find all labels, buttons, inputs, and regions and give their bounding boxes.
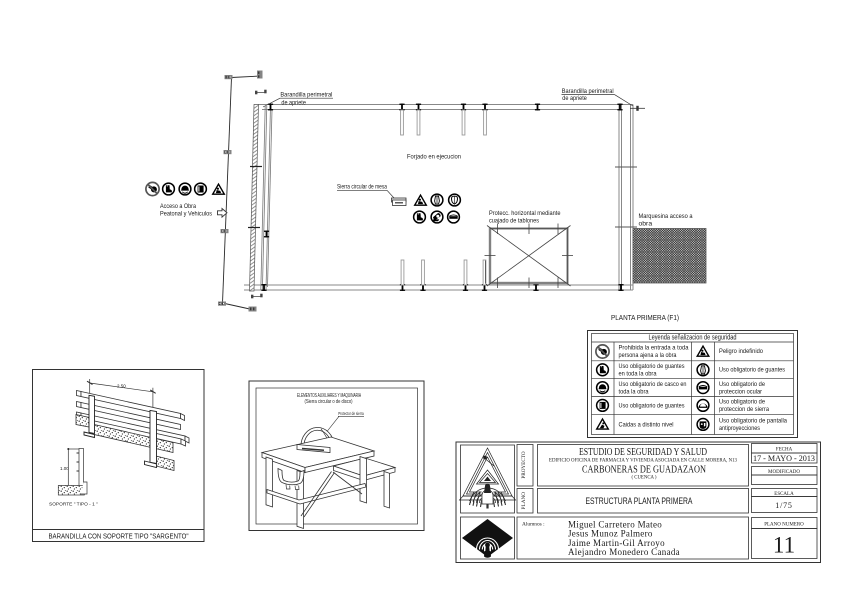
svg-text:1.00: 1.00	[60, 466, 69, 471]
svg-text:Sierra circular de mesa: Sierra circular de mesa	[337, 184, 387, 191]
svg-text:(Sierra circular o de disco): (Sierra circular o de disco)	[305, 399, 353, 405]
svg-text:PROYECTO: PROYECTO	[521, 451, 527, 479]
svg-text:persona ajena a la obra: persona ajena a la obra	[619, 352, 677, 359]
svg-text:PLANO NUMERO: PLANO NUMERO	[764, 523, 804, 528]
svg-text:ESTRUCTURA PLANTA PRIMERA: ESTRUCTURA PLANTA PRIMERA	[586, 496, 693, 507]
svg-text:Prohibida la entrada a toda: Prohibida la entrada a toda	[619, 345, 689, 352]
svg-text:Uso obligatorio de guantes: Uso obligatorio de guantes	[719, 367, 786, 374]
svg-text:Peatonal y Vehiculos: Peatonal y Vehiculos	[160, 211, 212, 218]
svg-text:BARANDILLA CON SOPORTE TIPO "S: BARANDILLA CON SOPORTE TIPO "SARGENTO"	[49, 532, 189, 541]
svg-text:2.50: 2.50	[117, 384, 126, 389]
svg-text:Protecc. horizontal mediante: Protecc. horizontal mediante	[489, 210, 561, 217]
svg-text:ESCALA: ESCALA	[774, 492, 794, 497]
svg-text:Peligro indefinido: Peligro indefinido	[719, 348, 763, 355]
svg-text:17 - MAYO - 2013: 17 - MAYO - 2013	[753, 453, 816, 463]
svg-text:MODIFICADO: MODIFICADO	[768, 470, 800, 475]
svg-text:CARBONERAS DE GUADAZAON: CARBONERAS DE GUADAZAON	[582, 465, 706, 476]
svg-text:Uso obligatorio de: Uso obligatorio de	[719, 381, 765, 388]
svg-text:Uso obligatorio de casco en: Uso obligatorio de casco en	[619, 381, 687, 388]
svg-text:de apriete: de apriete	[562, 95, 587, 102]
svg-text:cuajado de tablones: cuajado de tablones	[489, 218, 539, 225]
svg-text:Uso obligatorio de pantalla: Uso obligatorio de pantalla	[719, 418, 787, 425]
svg-text:Leyenda señalizacion de seguri: Leyenda señalizacion de seguridad	[649, 335, 737, 342]
svg-text:PLANTA PRIMERA (F1): PLANTA PRIMERA (F1)	[611, 313, 679, 322]
svg-text:1/75: 1/75	[775, 501, 792, 510]
svg-text:Barandilla perimetral: Barandilla perimetral	[562, 88, 614, 95]
svg-text:FECHA: FECHA	[776, 448, 793, 453]
svg-text:Caidas a distinto nivel: Caidas a distinto nivel	[619, 422, 674, 429]
svg-text:Forjado en ejecucion: Forjado en ejecucion	[407, 154, 461, 161]
svg-text:Alejandro Monedero Canada: Alejandro Monedero Canada	[568, 547, 680, 557]
svg-text:antiproyecciones: antiproyecciones	[719, 425, 761, 432]
svg-text:Uso obligatorio de: Uso obligatorio de	[719, 399, 765, 406]
svg-text:Uso obligatorio de guantes: Uso obligatorio de guantes	[619, 403, 686, 410]
svg-text:proteccion ocular: proteccion ocular	[719, 388, 763, 395]
svg-text:Barandilla perimetral: Barandilla perimetral	[280, 92, 332, 99]
svg-text:ESTUDIO DE SEGURIDAD Y SALUD: ESTUDIO DE SEGURIDAD Y SALUD	[579, 447, 707, 458]
svg-text:PLANO: PLANO	[521, 492, 527, 510]
svg-text:en toda la obra: en toda la obra	[619, 371, 657, 378]
svg-text:11: 11	[773, 533, 795, 558]
svg-text:Protector de sierra: Protector de sierra	[338, 411, 364, 416]
svg-text:Alumnos :: Alumnos :	[522, 522, 545, 528]
svg-text:toda la obra: toda la obra	[619, 388, 649, 395]
svg-text:Uso obligatorio de guantes: Uso obligatorio de guantes	[619, 363, 686, 370]
svg-text:de apriete: de apriete	[281, 99, 306, 106]
svg-text:proteccion de sierra: proteccion de sierra	[719, 406, 769, 413]
svg-text:EDIFICIO OFICINA DE FARMACIA Y: EDIFICIO OFICINA DE FARMACIA Y VIVIENDA …	[549, 459, 738, 464]
svg-text:obra: obra	[639, 221, 653, 228]
svg-text:Acceso a Obra: Acceso a Obra	[160, 203, 196, 210]
svg-text:SOPORTE " TIPO - 1 ": SOPORTE " TIPO - 1 "	[49, 502, 98, 508]
svg-text:Marquesina acceso a: Marquesina acceso a	[639, 213, 693, 220]
svg-text:( CUENCA ): ( CUENCA )	[631, 476, 656, 481]
